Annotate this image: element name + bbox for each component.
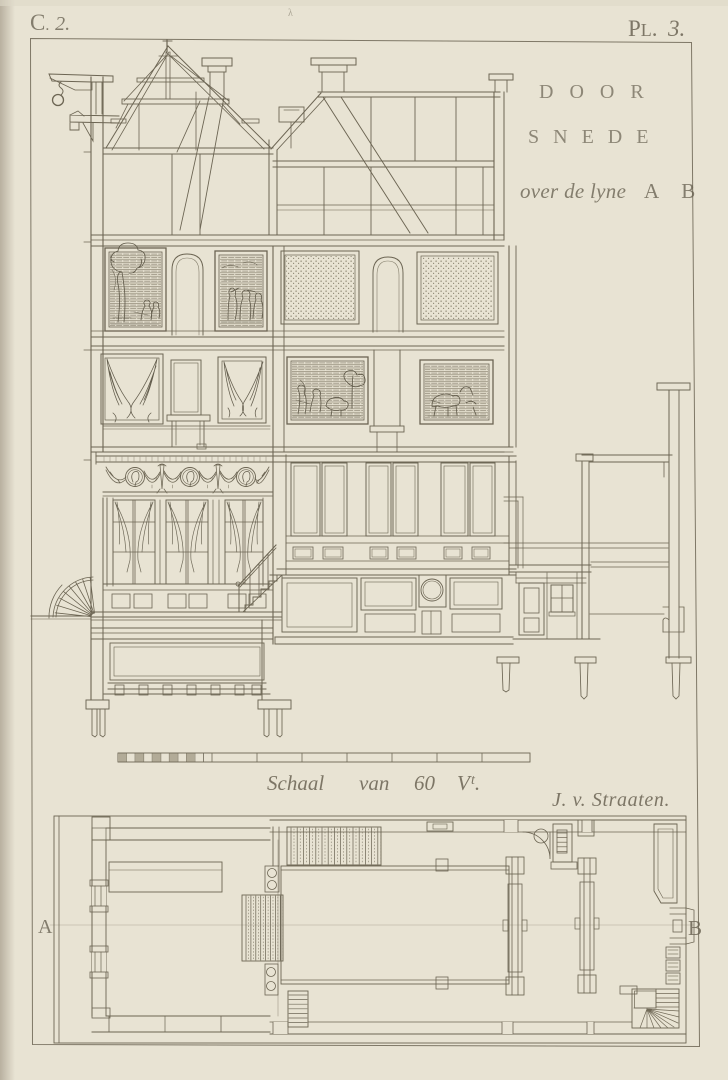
svg-text:J. v. Straaten.: J. v. Straaten. [552, 789, 670, 811]
svg-text:over de lyneA B: over de lyneA B [520, 179, 704, 203]
svg-text:B: B [688, 916, 702, 940]
svg-text:SNEDE: SNEDE [528, 126, 662, 148]
svg-text:PL.3.: PL.3. [628, 16, 685, 41]
svg-text:λ: λ [288, 8, 293, 19]
svg-text:C. 2.: C. 2. [30, 10, 70, 35]
svg-text:A: A [38, 916, 53, 938]
svg-text:DOOR: DOOR [539, 81, 660, 103]
